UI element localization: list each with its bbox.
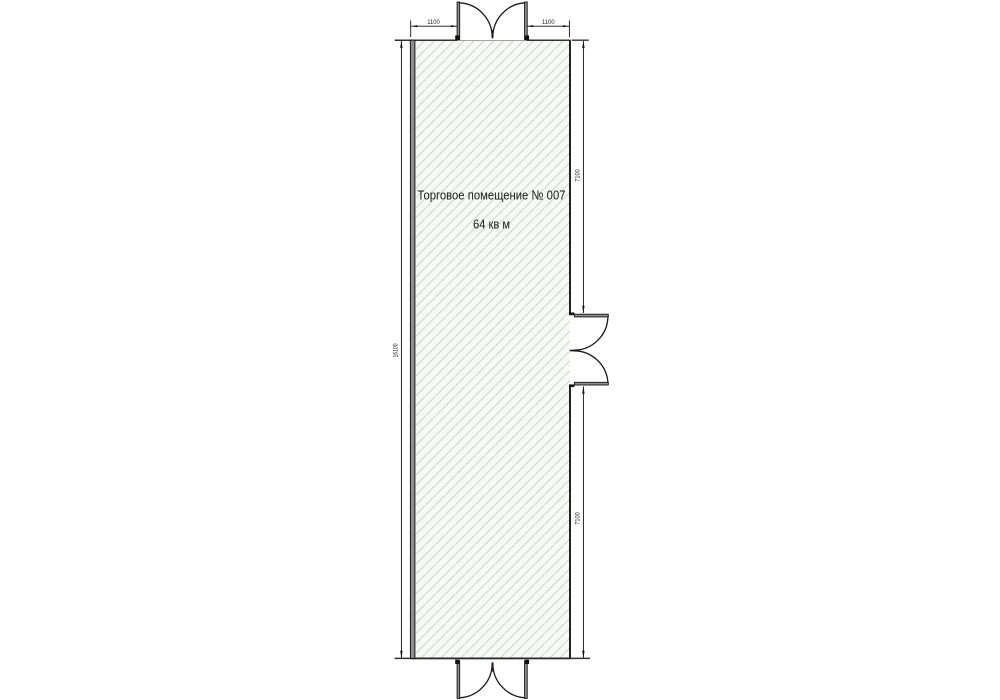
svg-text:7100: 7100 [575, 512, 582, 525]
svg-text:16100: 16100 [393, 343, 400, 357]
svg-text:64 кв м: 64 кв м [473, 217, 510, 232]
svg-text:7100: 7100 [575, 169, 582, 182]
svg-text:Торговое помещение № 007: Торговое помещение № 007 [418, 188, 566, 203]
svg-text:1100: 1100 [542, 19, 555, 26]
svg-text:1100: 1100 [427, 19, 440, 26]
